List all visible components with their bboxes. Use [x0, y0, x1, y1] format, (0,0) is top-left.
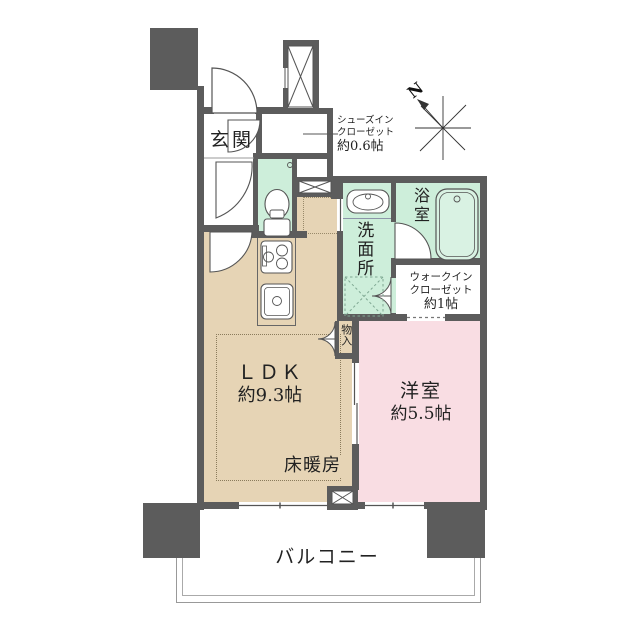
compass — [415, 96, 471, 160]
front-door-arc — [212, 68, 257, 113]
compass-arrow-head — [417, 99, 429, 110]
ldk-label: ＬＤＫ 約9.3帖 — [224, 360, 316, 408]
toilet-seat — [270, 210, 284, 218]
wic-label-line3: 約1帖 — [398, 297, 484, 313]
wic-label-line1: ウォークイン — [398, 271, 484, 284]
ldk-label-line2: 約9.3帖 — [224, 385, 316, 408]
sic-label-line2: クローゼット — [337, 127, 394, 139]
vanity-faucet — [366, 194, 371, 199]
sic-label-line1: シューズイン — [337, 115, 394, 127]
ldk-label-line1: ＬＤＫ — [224, 360, 316, 385]
fixtures-overlay: N — [0, 0, 640, 640]
western-room-label: 洋室 約5.5帖 — [380, 380, 462, 425]
wic-bifold-door — [372, 277, 391, 296]
storage-bifold-door — [318, 322, 335, 339]
genkan-label: 玄関 — [210, 129, 254, 153]
sic-label: シューズイン クローゼット 約0.6帖 — [337, 115, 394, 155]
wic-bifold-door — [372, 296, 391, 315]
towel-ring — [288, 163, 293, 168]
western-room-line1: 洋室 — [380, 380, 462, 404]
bathtub — [436, 189, 478, 260]
western-room-line2: 約5.5帖 — [380, 404, 462, 425]
sic-label-line3: 約0.6帖 — [337, 139, 394, 155]
balcony-label: バルコニー — [260, 546, 395, 570]
floor-heating-label: 床暖房 — [282, 455, 343, 478]
storage-bifold-door — [318, 339, 335, 356]
wic-label: ウォークイン クローゼット 約1帖 — [398, 271, 484, 314]
floor-plan: N 玄関 シューズイン クローゼット 約0.6帖 浴室 洗面所 ウォークイン ク… — [0, 0, 640, 640]
toilet-door-arc — [216, 162, 252, 218]
ldk-door-arc — [210, 232, 252, 272]
toilet-tank — [264, 219, 290, 236]
compass-n-label: N — [404, 78, 427, 102]
bathroom-door-arc — [395, 223, 431, 259]
washroom-label: 洗面所 — [352, 221, 373, 278]
kitchen-sink — [261, 284, 293, 319]
wic-label-line2: クローゼット — [398, 284, 484, 297]
storage-label: 物入 — [339, 324, 353, 346]
bathroom-label: 浴室 — [410, 187, 430, 225]
